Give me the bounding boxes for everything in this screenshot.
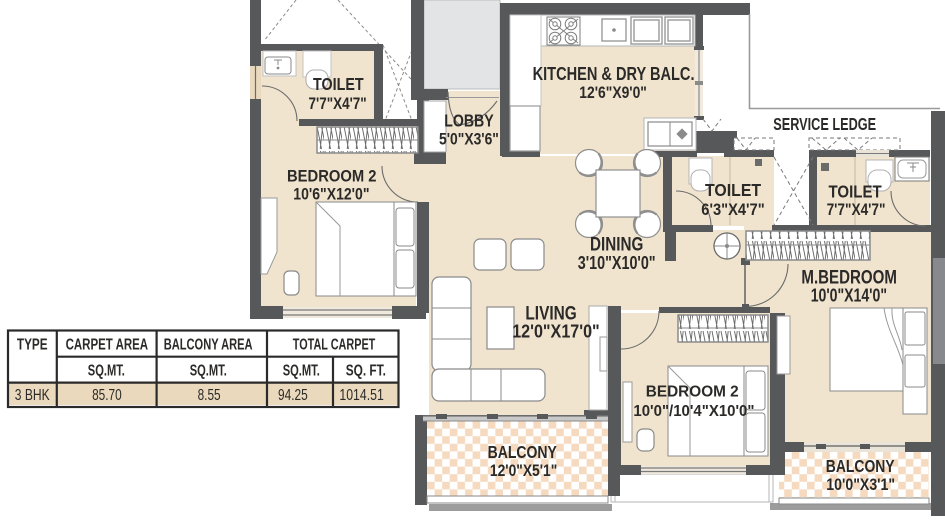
svg-text:BEDROOM 2: BEDROOM 2 bbox=[646, 384, 739, 401]
svg-text:94.25: 94.25 bbox=[278, 387, 308, 404]
svg-text:CARPET AREA: CARPET AREA bbox=[66, 336, 149, 353]
svg-text:1014.51: 1014.51 bbox=[339, 387, 383, 404]
svg-text:3'10"X10'0": 3'10"X10'0" bbox=[578, 253, 656, 273]
svg-text:85.70: 85.70 bbox=[92, 387, 122, 404]
svg-text:10'0"/10'4"X10'0": 10'0"/10'4"X10'0" bbox=[633, 403, 754, 420]
svg-text:SERVICE LEDGE: SERVICE LEDGE bbox=[773, 114, 876, 134]
svg-text:SQ. FT.: SQ. FT. bbox=[346, 363, 386, 380]
svg-text:SQ.MT.: SQ.MT. bbox=[283, 363, 320, 380]
svg-text:BALCONY: BALCONY bbox=[488, 442, 558, 462]
svg-text:12'0"X17'0": 12'0"X17'0" bbox=[512, 322, 600, 342]
svg-text:12'0"X5'1": 12'0"X5'1" bbox=[490, 461, 557, 480]
svg-text:3 BHK: 3 BHK bbox=[15, 387, 50, 404]
svg-text:8.55: 8.55 bbox=[198, 387, 221, 404]
svg-text:6'3"X4'7": 6'3"X4'7" bbox=[701, 200, 764, 219]
svg-text:TOILET: TOILET bbox=[313, 74, 364, 94]
svg-text:KITCHEN & DRY BALC.: KITCHEN & DRY BALC. bbox=[533, 64, 695, 84]
svg-text:7'7"X4'7": 7'7"X4'7" bbox=[827, 200, 886, 219]
svg-text:SQ.MT.: SQ.MT. bbox=[190, 363, 227, 380]
svg-text:BALCONY: BALCONY bbox=[826, 456, 895, 476]
svg-text:TYPE: TYPE bbox=[17, 336, 48, 353]
svg-text:TOILET: TOILET bbox=[705, 180, 761, 200]
svg-text:10'6"X12'0": 10'6"X12'0" bbox=[293, 184, 369, 203]
svg-text:BEDROOM 2: BEDROOM 2 bbox=[287, 167, 377, 186]
svg-text:5'0"X3'6": 5'0"X3'6" bbox=[439, 130, 499, 149]
svg-text:7'7"X4'7": 7'7"X4'7" bbox=[309, 94, 367, 113]
svg-text:BALCONY AREA: BALCONY AREA bbox=[164, 336, 253, 353]
svg-text:TOILET: TOILET bbox=[829, 182, 882, 202]
svg-text:SQ.MT.: SQ.MT. bbox=[88, 363, 125, 380]
svg-text:12'6"X9'0": 12'6"X9'0" bbox=[579, 83, 647, 102]
svg-text:LOBBY: LOBBY bbox=[444, 111, 494, 131]
svg-text:10'0"X3'1": 10'0"X3'1" bbox=[826, 475, 895, 494]
svg-text:10'0"X14'0": 10'0"X14'0" bbox=[811, 285, 887, 305]
svg-text:TOTAL CARPET: TOTAL CARPET bbox=[293, 336, 376, 353]
